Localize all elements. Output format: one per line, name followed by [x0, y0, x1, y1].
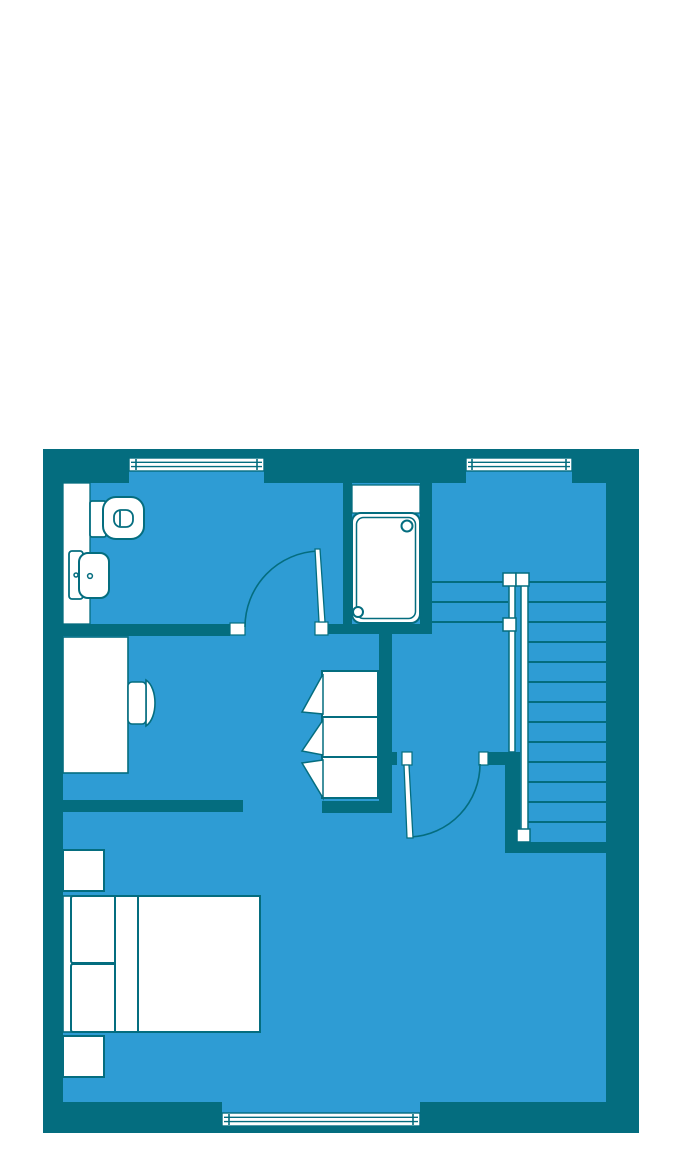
bathtub [352, 485, 420, 623]
toilet [90, 497, 144, 539]
floorplan-image [0, 0, 681, 1174]
wall-right [606, 449, 639, 1133]
wall-wardrobe-south [322, 801, 392, 813]
floorplan-svg [0, 0, 681, 1174]
railing-post-bottom [517, 829, 530, 842]
door-jamb [315, 622, 328, 635]
sink [69, 551, 109, 599]
wall-top-window2-strip [466, 449, 572, 458]
wall-bathroom-south [63, 624, 230, 636]
wall-bedroom-door-stub-left [379, 752, 397, 765]
wall-bathtub-west [343, 483, 352, 624]
bed-sheet-band [115, 896, 138, 1032]
bed-pillow-2 [71, 964, 116, 1032]
bathtub-shelf [352, 485, 420, 513]
wall-top-mid-block [264, 449, 466, 483]
desk-chair [128, 680, 155, 726]
wardrobe-door-3 [322, 757, 378, 798]
double-bed [63, 896, 260, 1032]
wardrobe-door-2 [322, 717, 378, 757]
railing-rail-outer [521, 582, 528, 832]
nightstand-top [63, 850, 104, 891]
nightstand-bottom [63, 1036, 104, 1077]
wall-under-bathtub [322, 624, 432, 634]
bed-pillow-1 [71, 896, 116, 963]
wall-top-left-block [43, 449, 129, 483]
window-bathroom [129, 458, 264, 471]
door-jamb [479, 752, 488, 765]
railing-rail-inner [509, 582, 515, 752]
railing-post-top-2 [516, 573, 529, 586]
window-bedroom [222, 1113, 420, 1126]
railing-post-mid [503, 618, 516, 631]
bathtub-tap [353, 607, 363, 617]
bed-duvet [138, 896, 260, 1032]
window-landing [466, 458, 572, 471]
wall-left [43, 449, 63, 1133]
wall-study-south [63, 800, 243, 812]
wardrobe-door-1 [322, 671, 378, 717]
door-jamb [402, 752, 412, 765]
wall-bottom-window3-strip [222, 1126, 420, 1133]
wall-top-window1-strip [129, 449, 264, 458]
wall-stair-south [505, 842, 610, 853]
bathtub-drain [402, 521, 413, 532]
desk [63, 637, 128, 773]
wall-bathtub-east [420, 483, 432, 634]
wall-bottom-left-block [43, 1102, 222, 1133]
wall-bottom-right-block [420, 1102, 639, 1133]
wall-hall-divider [379, 634, 392, 813]
wardrobe [302, 671, 378, 798]
railing-post-top-1 [503, 573, 516, 586]
door-jamb [230, 623, 245, 635]
